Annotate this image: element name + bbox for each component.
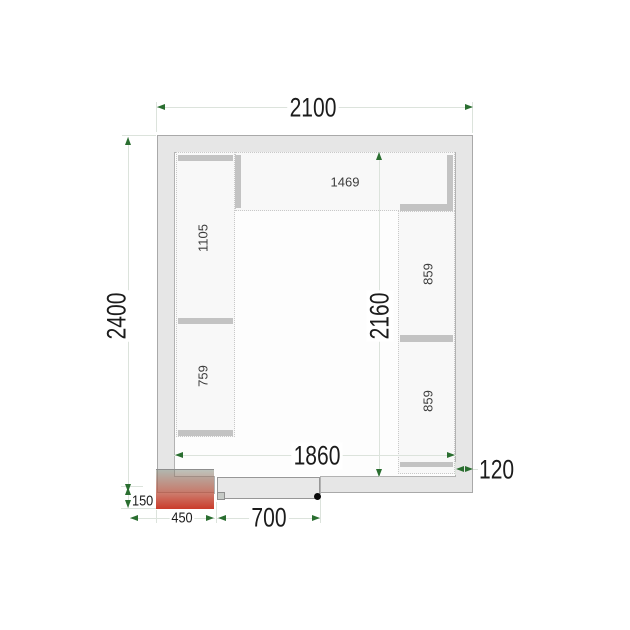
dim-700-arrowhead-right-icon [312,515,320,521]
dim-line-120 [473,469,478,470]
dim-120-arrowhead-left-icon [456,466,464,472]
ext-line [122,135,156,136]
dim-450-arrowhead-left-icon [130,515,138,521]
shelf-left [176,152,235,437]
dim-1860-arrowhead-right-icon [447,452,455,458]
shelf-support-bar [400,204,453,211]
shelf-label-right-upper: 859 [422,263,435,285]
dim-2100-arrowhead-left-icon [157,104,165,110]
dim-text-outer-depth: 2400 [104,290,131,342]
shelf-label-left-lower: 759 [197,365,210,387]
shelf-support-bar [178,155,233,161]
shelf-support-bar [178,430,233,436]
dim-text-outer-width: 2100 [287,95,339,122]
dim-2400-arrowhead-top-icon [125,137,131,145]
floor-plan-diagram: 1469 1105 759 859 859 2100 2400 2160 186… [0,0,630,630]
ext-line [156,510,157,523]
door-handle-dot-icon [314,493,321,500]
dim-text-inner-depth: 2160 [367,290,394,342]
ext-line [320,499,321,523]
dim-text-door-width: 700 [249,505,289,532]
shelf-support-bar [400,462,453,467]
dim-450-arrowhead-right-icon [206,515,214,521]
dim-2160-arrowhead-bottom-icon [376,469,382,477]
dim-text-unit-width: 450 [170,511,195,526]
shelf-support-bar [447,155,453,204]
dim-text-wall-thickness: 120 [479,457,514,484]
dim-120-arrowhead-right-icon [465,466,473,472]
dim-150-arrowhead-top-icon [125,487,131,495]
door-leaf [217,477,320,499]
shelf-support-bar [235,155,241,208]
dim-text-inner-width: 1860 [291,443,343,470]
shelf-support-bar [400,335,453,342]
dim-700-arrowhead-left-icon [218,515,226,521]
shelf-right [398,211,455,474]
dim-150-arrowhead-bottom-icon [125,500,131,508]
dim-2160-arrowhead-top-icon [376,152,382,160]
shelf-label-top: 1469 [331,176,360,189]
shelf-label-left-upper: 1105 [197,224,210,252]
dim-text-unit-protrusion: 150 [132,494,153,509]
dim-1860-arrowhead-left-icon [175,452,183,458]
cooling-unit-block [156,469,214,509]
dim-2100-arrowhead-right-icon [465,104,473,110]
ext-line [216,502,217,523]
door-hinge-block [217,492,225,500]
shelf-label-right-lower: 859 [422,390,435,412]
shelf-support-bar [178,318,233,324]
